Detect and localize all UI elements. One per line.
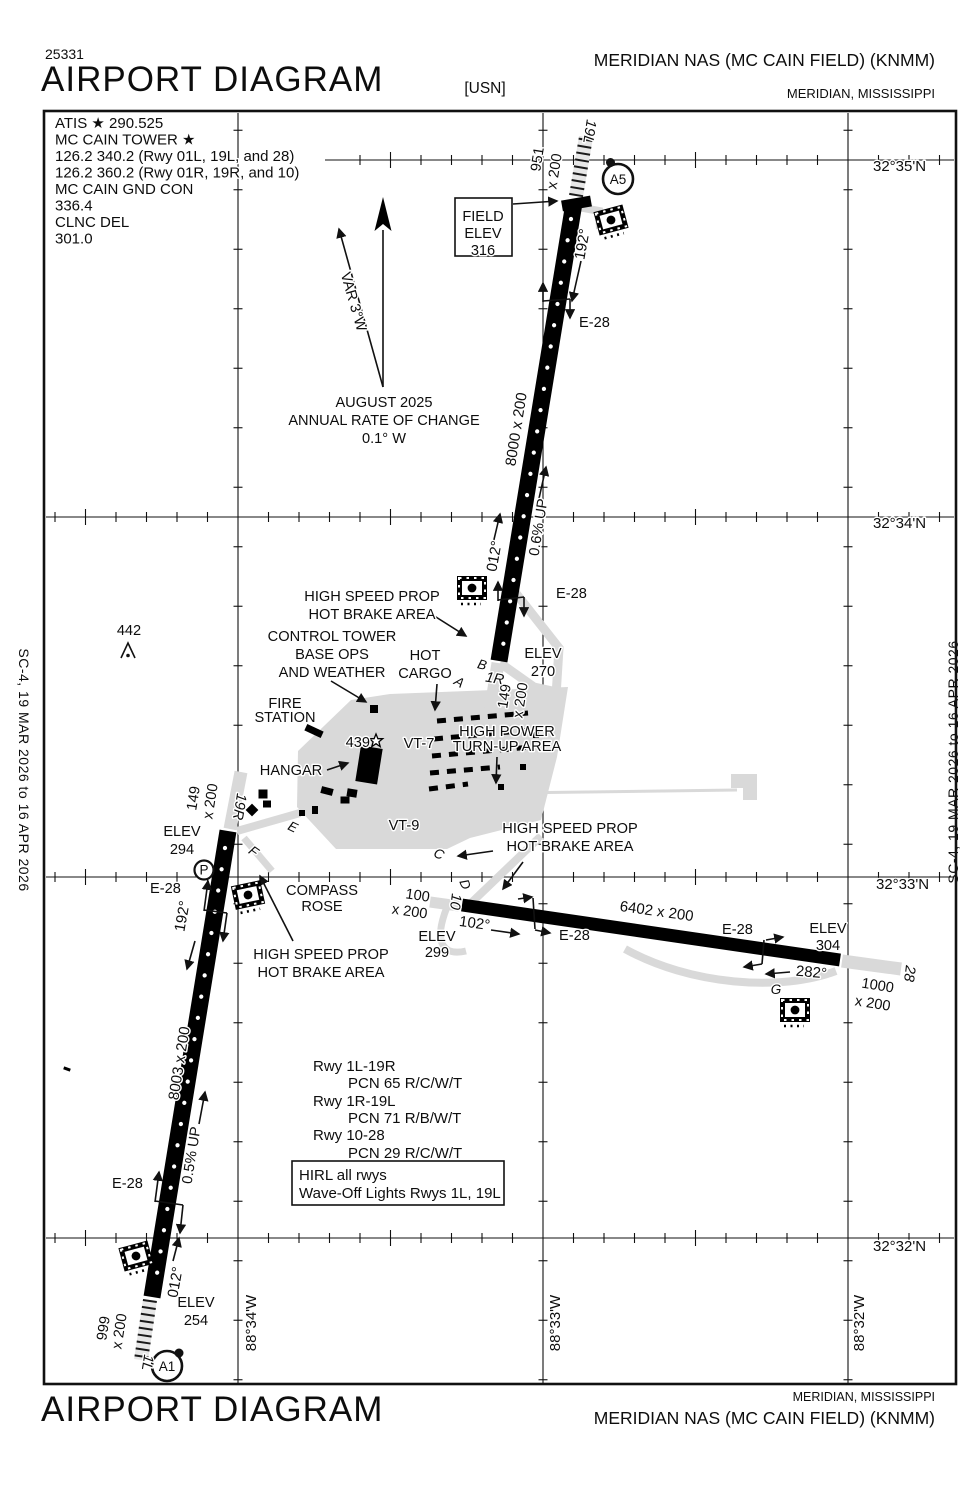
elev-1l-value: 254 — [184, 1313, 208, 1329]
heading-012-ne: 012° — [484, 539, 506, 573]
gradient-arrow-sw — [199, 1092, 205, 1124]
elev-28-label: ELEV — [809, 921, 847, 937]
control-tower-1: CONTROL TOWER — [268, 629, 397, 645]
pcn-rwy-3: Rwy 10-28 — [313, 1127, 385, 1144]
overrun-28-dim-2: x 200 — [854, 993, 892, 1014]
parking-p: P — [199, 863, 208, 878]
elev-19r-value: 294 — [170, 842, 194, 858]
dim-runway-ew: 6402 x 200 — [619, 898, 695, 925]
field-elev-1: FIELD — [462, 209, 503, 225]
comm-atis: ATIS ★ 290.525 — [55, 115, 163, 132]
taxiway-a5: A5 — [610, 172, 627, 187]
e28-label-19l: E-28 — [579, 315, 610, 331]
pcn-val-3: PCN 29 R/C/W/T — [348, 1145, 462, 1162]
heading-102-arrow — [491, 930, 519, 934]
comm-freq-1: 126.2 340.2 (Rwy 01L, 19L, and 28) — [55, 148, 294, 165]
taxiway-d: D — [456, 877, 474, 892]
comm-clnc: CLNC DEL — [55, 214, 129, 231]
field-elev-2: ELEV — [464, 226, 502, 242]
taxiway-a: A — [451, 673, 467, 691]
elev-28-value: 304 — [816, 938, 840, 954]
lat-label-3233: 32°33'N — [876, 876, 929, 893]
variation-rate-1: ANNUAL RATE OF CHANGE — [288, 413, 480, 429]
high-power-1: HIGH POWER — [459, 724, 555, 740]
e28-label-19r: E-28 — [150, 881, 181, 897]
fire-station-2: STATION — [254, 710, 315, 726]
true-north-arrow-icon — [375, 197, 392, 231]
taxiway-e: E — [286, 818, 301, 836]
e28-label-01l: E-28 — [112, 1176, 143, 1192]
comm-gnd-freq: 336.4 — [55, 198, 93, 215]
airport-diagram-page: 25331 AIRPORT DIAGRAM [USN] MERIDIAN NAS… — [0, 0, 979, 1500]
squadron-vt7: VT-7 — [404, 736, 435, 752]
heading-012-arrow-sw — [173, 1238, 179, 1261]
tower-elevation: 439 — [346, 735, 370, 751]
lighting-note-1: HIRL all rwys — [299, 1167, 387, 1184]
hangar-label: HANGAR — [260, 763, 322, 779]
gradient-arrow-ne — [538, 467, 546, 503]
hot-brake-top-2: HOT BRAKE AREA — [308, 607, 435, 623]
e28-label-28: E-28 — [722, 922, 753, 938]
hot-cargo-2: CARGO — [398, 666, 452, 682]
control-tower-arrow — [331, 681, 366, 702]
runway-number-10: 10 — [446, 892, 464, 910]
runway-19l-threshold — [562, 201, 591, 206]
lat-label-3234: 32°34'N — [873, 515, 926, 532]
hot-brake-right-1: HIGH SPEED PROP — [502, 821, 637, 837]
obstruction-mark — [63, 1066, 71, 1071]
heading-282: 282° — [795, 963, 827, 983]
compass-rose-2: ROSE — [301, 899, 343, 915]
pcn-val-2: PCN 71 R/B/W/T — [348, 1110, 461, 1127]
e28-label-01r: E-28 — [556, 586, 587, 602]
heading-102: 102° — [458, 913, 491, 934]
variation-date: AUGUST 2025 — [335, 395, 432, 411]
pcn-rwy-2: Rwy 1R-19L — [313, 1093, 396, 1110]
overrun-10-dim-1: 100 — [404, 886, 430, 905]
variation-label: VAR 3°W — [337, 271, 369, 334]
obstruction-elevation: 442 — [117, 623, 141, 639]
lon-label-8833: 88°33'W — [547, 1294, 564, 1351]
hot-cargo-1: HOT — [410, 648, 441, 664]
runway-number-28: 28 — [900, 963, 918, 983]
overrun-28 — [842, 961, 901, 969]
runway-01l-19r — [152, 831, 228, 1297]
overrun-19l-dim-1: 951 — [528, 146, 548, 173]
hot-brake-right-2: HOT BRAKE AREA — [506, 839, 633, 855]
obstruction-icon — [121, 643, 135, 658]
pad-icon-mid — [457, 576, 487, 604]
elev-19r-label: ELEV — [163, 824, 201, 840]
taxiway-g: G — [771, 982, 782, 997]
overrun-19r-dim-1: 149 — [184, 785, 204, 812]
e28-label-10: E-28 — [559, 928, 590, 944]
hot-brake-top-1: HIGH SPEED PROP — [304, 589, 439, 605]
high-power-arrow — [496, 757, 497, 783]
runway-number-1r: 1R — [484, 670, 506, 689]
lon-label-8834: 88°34'W — [243, 1294, 260, 1351]
field-elev-arrow — [513, 201, 557, 204]
overrun-19l-dim-2: x 200 — [544, 152, 565, 190]
hot-brake-left-2: HOT BRAKE AREA — [257, 965, 384, 981]
heading-192-sw: 192° — [172, 899, 194, 933]
pad-icon-west — [231, 880, 266, 914]
lon-label-8832: 88°32'W — [851, 1294, 868, 1351]
compass-rose-1: COMPASS — [286, 883, 358, 899]
heading-012-sw: 012° — [165, 1265, 187, 1299]
heading-282-arrow — [766, 972, 790, 974]
pcn-rwy-1: Rwy 1L-19R — [313, 1058, 396, 1075]
elev-1l-label: ELEV — [177, 1295, 215, 1311]
runway-number-19l: 19L — [579, 118, 599, 145]
comm-clnc-freq: 301.0 — [55, 231, 93, 248]
lighting-note-2: Wave-Off Lights Rwys 1L, 19L — [299, 1185, 501, 1202]
pad-icon-east — [780, 998, 810, 1026]
heading-192-arrow-ne — [572, 261, 581, 301]
hot-brake-left-1: HIGH SPEED PROP — [253, 947, 388, 963]
airport-diagram-chart: ATIS ★ 290.525 MC CAIN TOWER ★ 126.2 340… — [0, 0, 979, 1500]
overrun-28-dim-1: 1000 — [860, 976, 895, 997]
control-tower-3: AND WEATHER — [279, 665, 386, 681]
elev-10-value: 299 — [425, 945, 449, 961]
lat-label-3235: 32°35'N — [873, 158, 926, 175]
squadron-vt9: VT-9 — [389, 818, 420, 834]
control-tower-2: BASE OPS — [295, 647, 369, 663]
variation-rate-2: 0.1° W — [362, 431, 406, 447]
control-tower-building — [370, 705, 378, 713]
elev-1r-label: ELEV — [524, 646, 562, 662]
comm-tower: MC CAIN TOWER ★ — [55, 132, 195, 149]
high-power-pad — [731, 774, 757, 800]
hot-brake-arrow-right-1 — [458, 851, 493, 856]
high-power-2: TURN-UP AREA — [453, 739, 562, 755]
elev-10-label: ELEV — [418, 929, 456, 945]
field-elev-3: 316 — [471, 243, 495, 259]
runway-number-1l: 1L — [138, 1353, 156, 1372]
heading-192-arrow-sw — [187, 941, 195, 969]
pcn-val-1: PCN 65 R/C/W/T — [348, 1075, 462, 1092]
comm-gnd: MC CAIN GND CON — [55, 181, 193, 198]
elev-1r-value: 270 — [531, 664, 555, 680]
taxiway-a1: A1 — [159, 1359, 176, 1374]
comm-freq-2: 126.2 360.2 (Rwy 01R, 19R, and 10) — [55, 165, 299, 182]
lat-label-3232: 32°32'N — [873, 1238, 926, 1255]
